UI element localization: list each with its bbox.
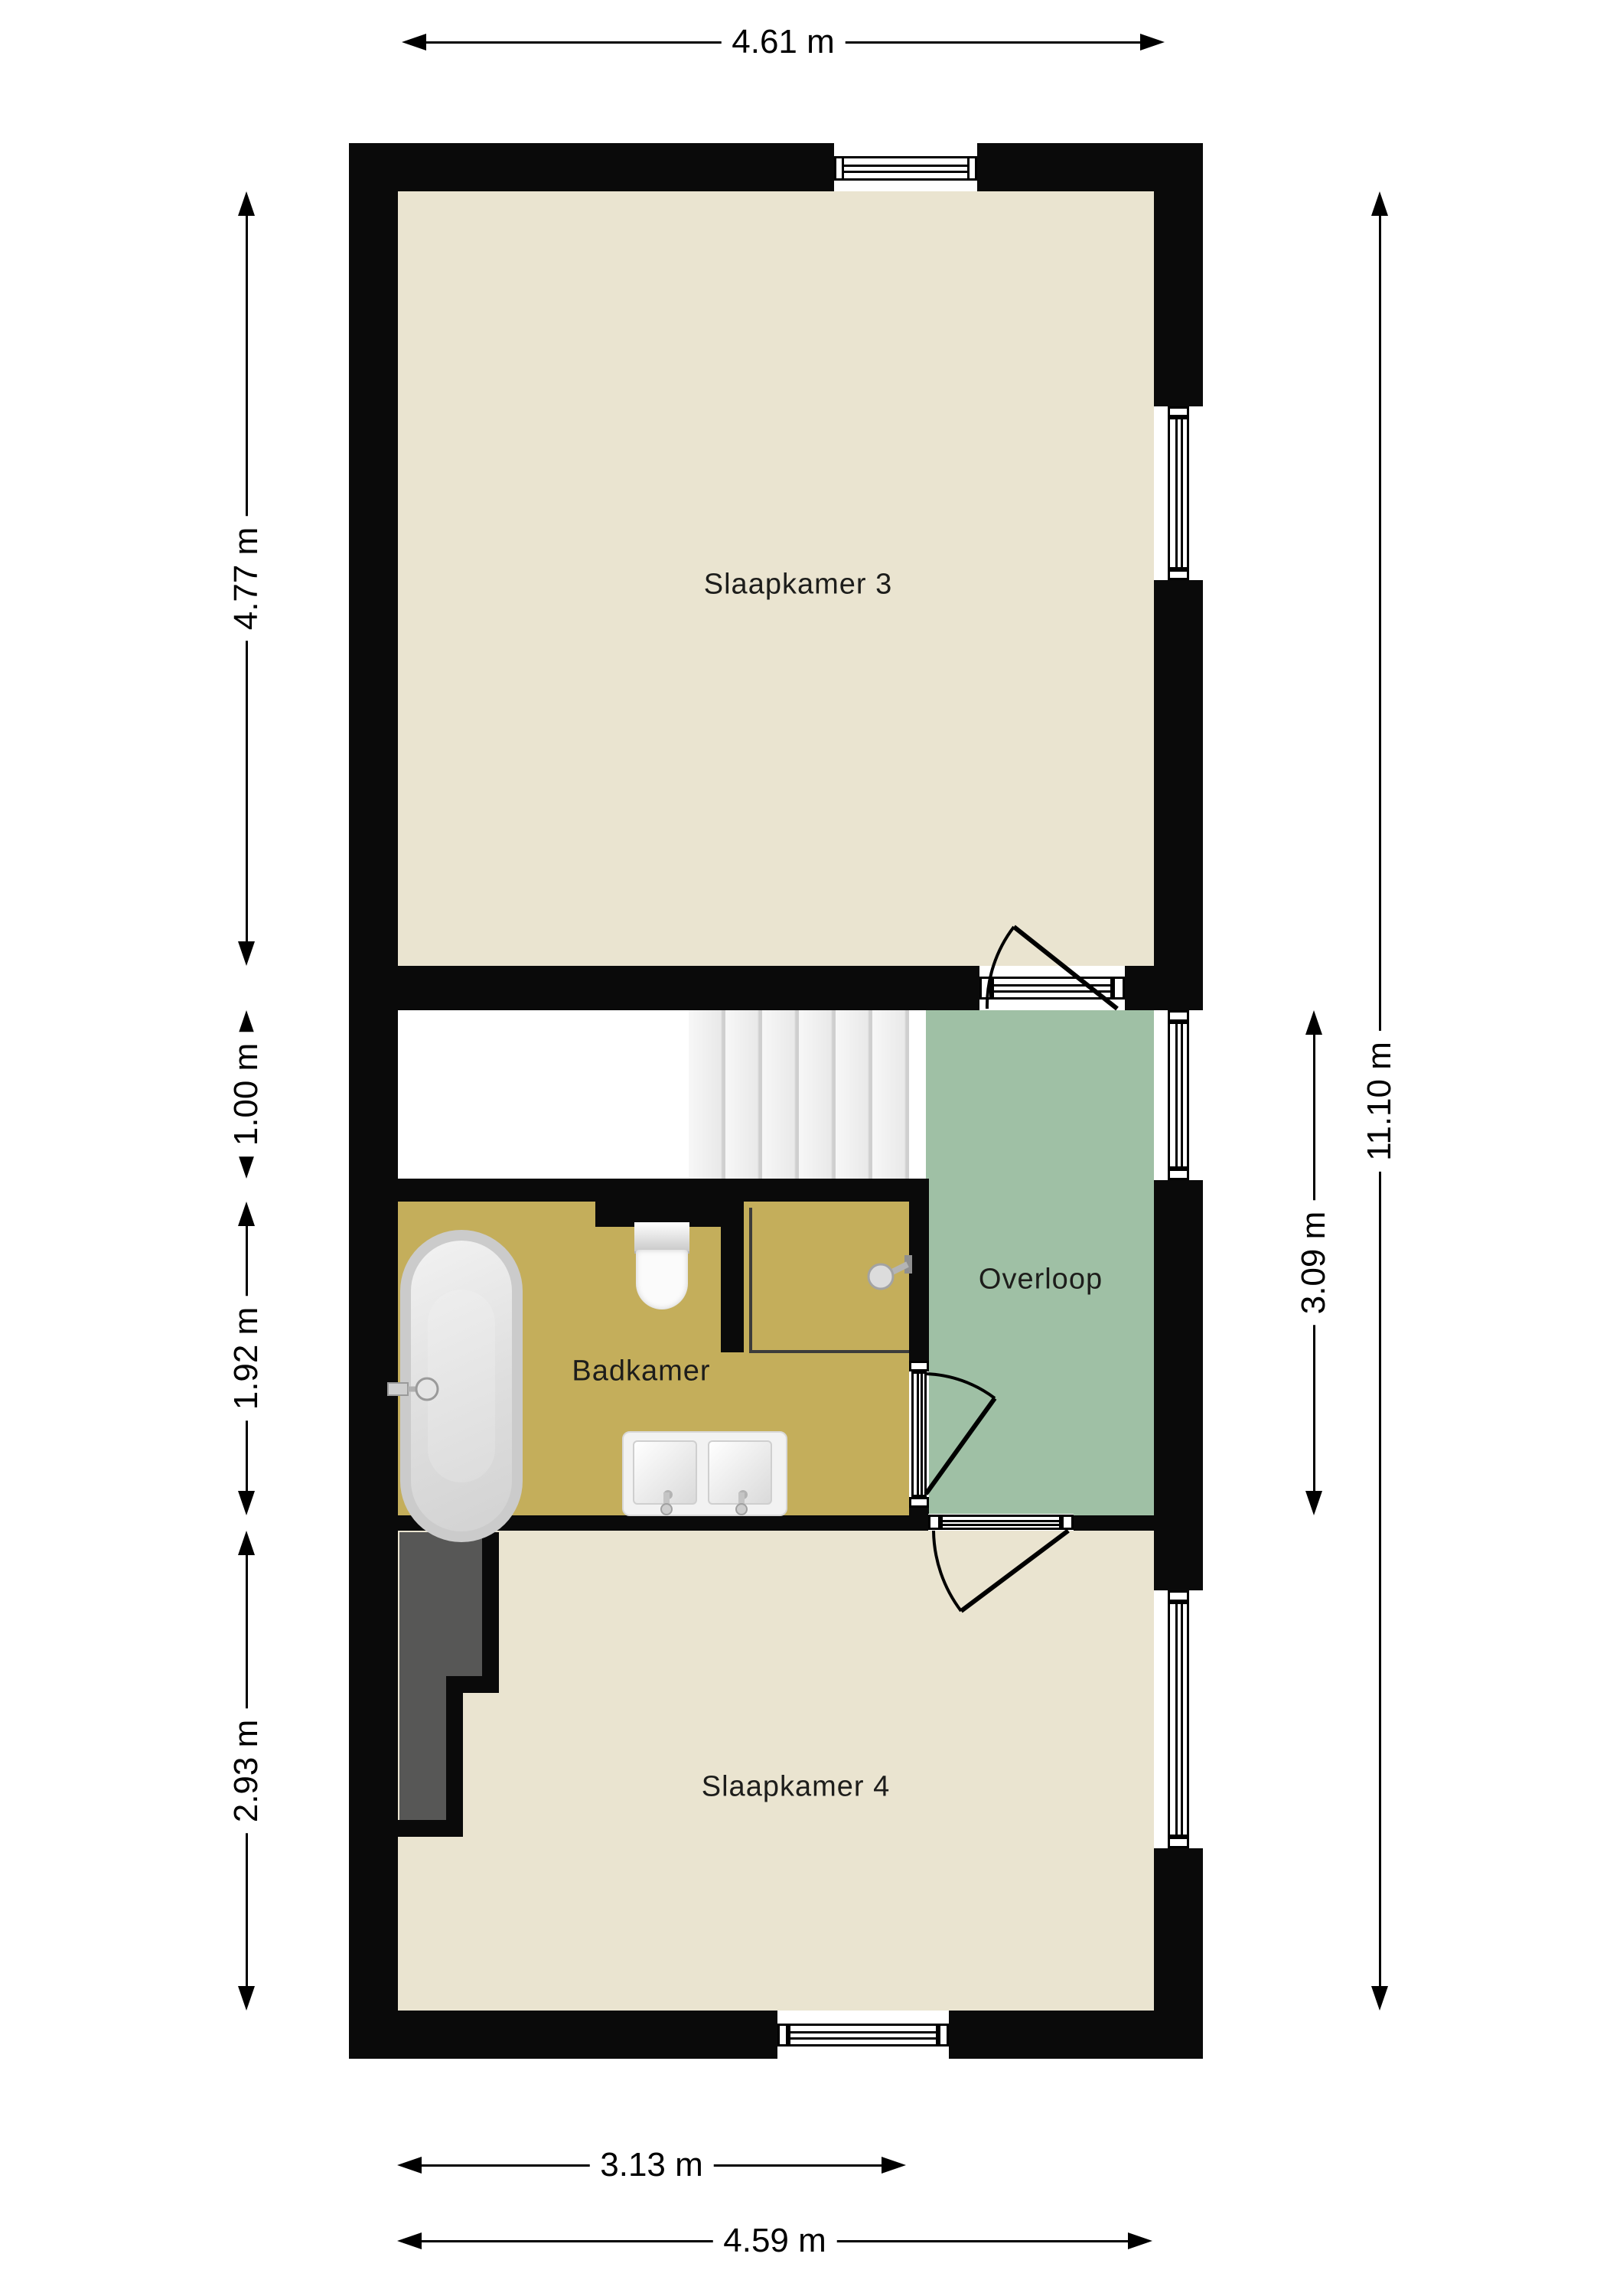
arrowhead-icon <box>1371 191 1388 216</box>
dimension-value: 4.59 m <box>712 2219 837 2263</box>
dimension-bottom-partial-width: 3.13 m <box>397 2148 906 2182</box>
arrowhead-icon <box>238 1202 255 1226</box>
dimension-total-height: 11.10 m <box>1363 191 1396 2011</box>
door-swing-icon <box>934 1531 1068 1611</box>
dimension-value: 4.77 m <box>224 517 269 641</box>
arrowhead-icon <box>238 1154 255 1179</box>
dimension-value: 4.61 m <box>721 20 846 64</box>
arrowhead-icon <box>1371 1986 1388 2011</box>
dimension-landing-height: 1.00 m <box>230 1010 263 1179</box>
arrowhead-icon <box>238 191 255 216</box>
bath-faucet-icon <box>388 1378 438 1400</box>
dimension-value: 11.10 m <box>1357 1031 1402 1172</box>
arrowhead-icon <box>1305 1491 1322 1515</box>
dimension-value: 3.09 m <box>1292 1201 1336 1326</box>
room-label-slaapkamer-3: Slaapkamer 3 <box>704 569 892 602</box>
room-label-slaapkamer-4: Slaapkamer 4 <box>702 1771 890 1804</box>
floor-plan: Slaapkamer 3 Badkamer Overloop Slaapkame… <box>0 0 1623 2296</box>
arrowhead-icon <box>238 1010 255 1035</box>
arrowhead-icon <box>238 1986 255 2011</box>
dimension-value: 1.92 m <box>224 1296 269 1421</box>
dimension-overloop-height: 3.09 m <box>1297 1010 1331 1515</box>
arrowhead-icon <box>1305 1010 1322 1035</box>
door-swing-icon <box>926 1374 995 1494</box>
dimension-bottom-width: 4.59 m <box>397 2224 1152 2258</box>
dimension-value: 1.00 m <box>224 1032 269 1157</box>
arrowhead-icon <box>1140 34 1165 51</box>
arrowhead-icon <box>1128 2232 1152 2249</box>
arrowhead-icon <box>397 2157 422 2174</box>
dimension-value: 2.93 m <box>224 1708 269 1833</box>
arrowhead-icon <box>238 1491 255 1515</box>
dimension-badkamer-height: 1.92 m <box>230 1202 263 1515</box>
dimension-slaapkamer3-height: 4.77 m <box>230 191 263 966</box>
dimension-top-width: 4.61 m <box>402 25 1165 59</box>
arrowhead-icon <box>238 1531 255 1555</box>
room-label-overloop: Overloop <box>979 1264 1103 1296</box>
dimension-slaapkamer4-height: 2.93 m <box>230 1531 263 2011</box>
arrowhead-icon <box>882 2157 906 2174</box>
dimension-value: 3.13 m <box>589 2143 714 2187</box>
shower-head-icon <box>869 1255 912 1289</box>
arrowhead-icon <box>397 2232 422 2249</box>
room-label-badkamer: Badkamer <box>572 1355 710 1388</box>
arrowhead-icon <box>402 34 426 51</box>
door-swing-icon <box>987 927 1117 1009</box>
arrowhead-icon <box>238 941 255 966</box>
